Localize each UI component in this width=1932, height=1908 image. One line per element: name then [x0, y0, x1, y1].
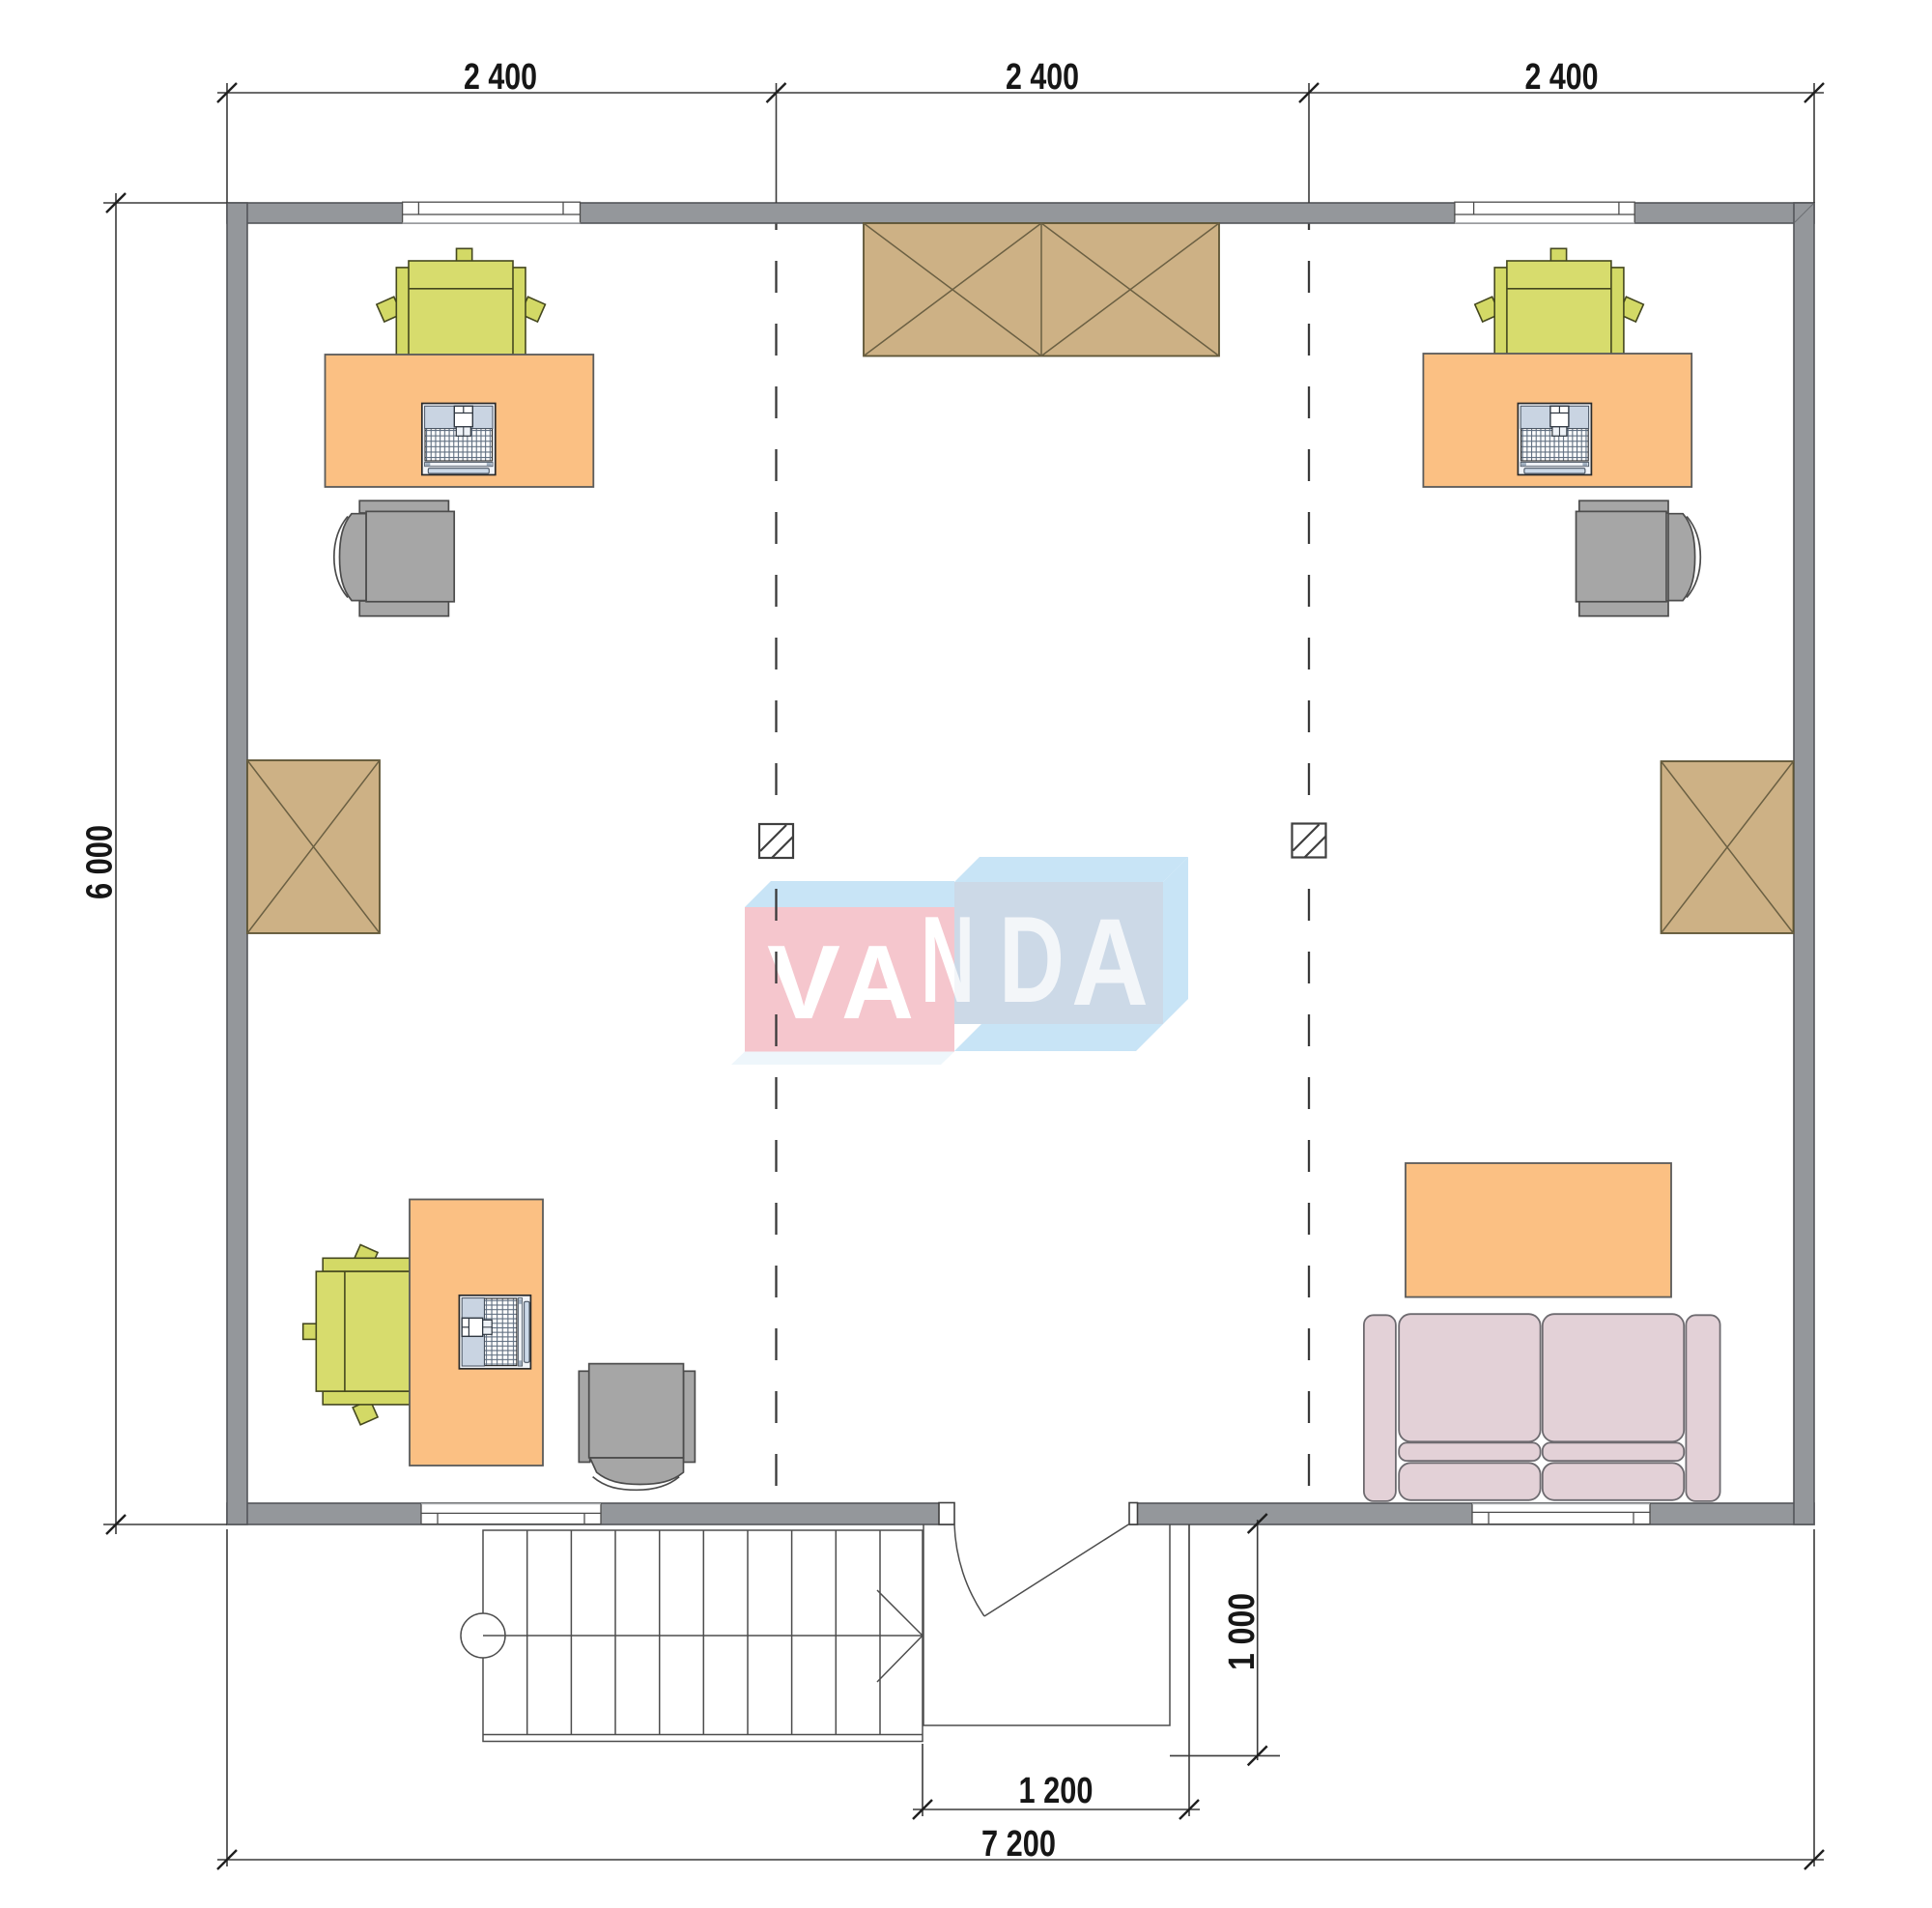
svg-text:6 000: 6 000 — [80, 825, 121, 899]
svg-text:A: A — [841, 924, 914, 1041]
svg-text:1 200: 1 200 — [1019, 1771, 1094, 1811]
svg-text:7 200: 7 200 — [981, 1824, 1056, 1865]
svg-text:2 400: 2 400 — [1006, 57, 1079, 98]
svg-text:1 000: 1 000 — [1222, 1593, 1263, 1670]
svg-text:2 400: 2 400 — [464, 57, 537, 98]
svg-text:2 400: 2 400 — [1525, 57, 1599, 98]
svg-text:V: V — [767, 924, 840, 1041]
